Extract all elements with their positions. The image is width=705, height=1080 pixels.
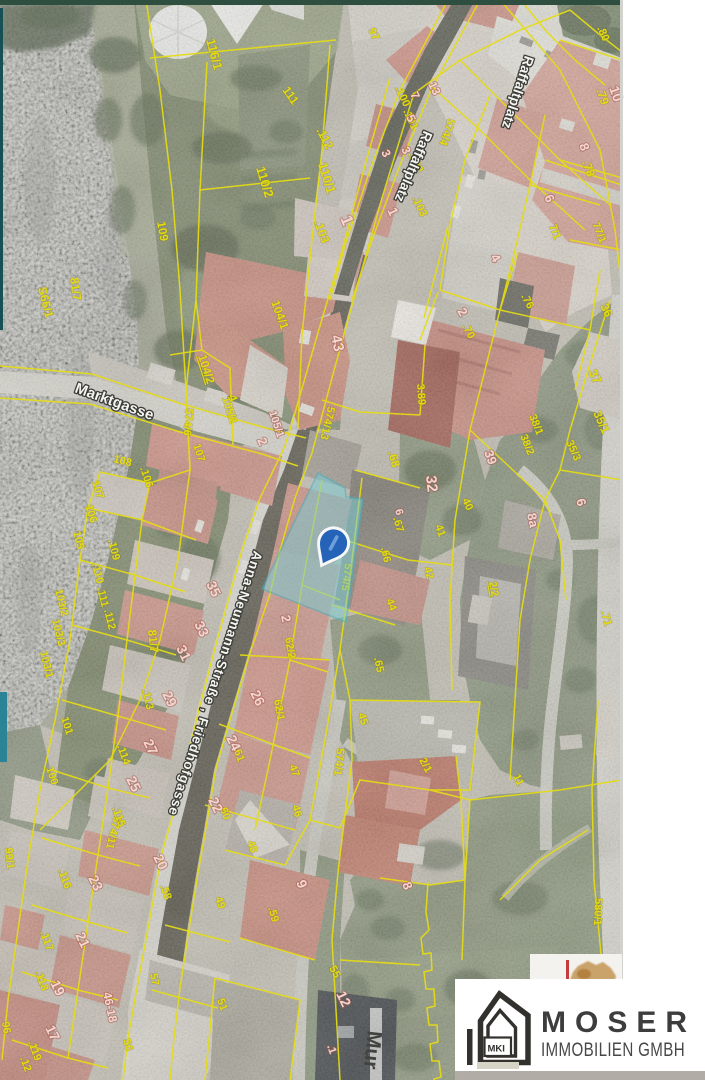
svg-text:81/7: 81/7 bbox=[145, 629, 161, 654]
svg-text:43: 43 bbox=[327, 333, 347, 353]
svg-text:3.89: 3.89 bbox=[414, 383, 427, 405]
svg-text:57: 57 bbox=[147, 972, 161, 986]
svg-text:32: 32 bbox=[422, 475, 441, 493]
svg-text:MKI: MKI bbox=[488, 1044, 505, 1055]
svg-text:IMMOBILIEN GMBH: IMMOBILIEN GMBH bbox=[541, 1038, 685, 1060]
svg-text:574/6: 574/6 bbox=[181, 408, 195, 436]
svg-text:Mur: Mur bbox=[359, 1030, 386, 1071]
svg-text:580/1: 580/1 bbox=[591, 898, 604, 926]
svg-text:96: 96 bbox=[0, 1021, 13, 1035]
svg-text:MOSER: MOSER bbox=[541, 1006, 696, 1039]
svg-text:99/1: 99/1 bbox=[2, 847, 16, 870]
